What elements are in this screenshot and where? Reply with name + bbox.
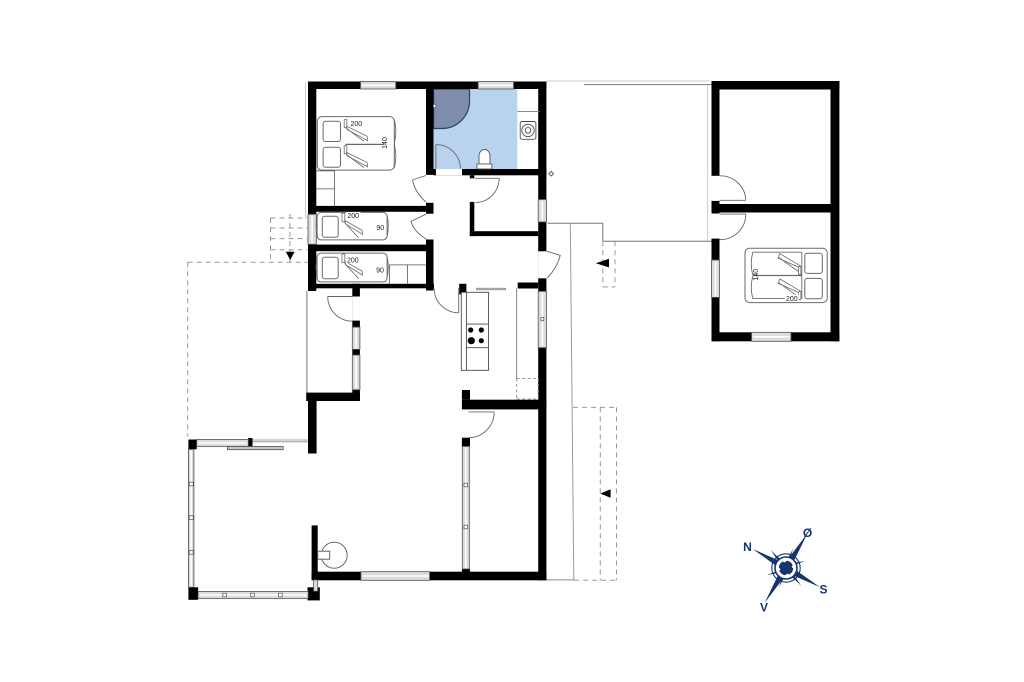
svg-text:200: 200	[350, 121, 362, 128]
svg-text:200: 200	[786, 296, 798, 303]
svg-text:90: 90	[376, 225, 384, 232]
svg-text:140: 140	[753, 269, 760, 281]
svg-text:200: 200	[347, 257, 359, 264]
svg-text:S: S	[819, 583, 827, 597]
svg-text:90: 90	[376, 268, 384, 275]
svg-text:V: V	[760, 601, 768, 615]
svg-text:N: N	[743, 540, 752, 554]
svg-text:200: 200	[347, 213, 359, 220]
svg-text:Ø: Ø	[803, 526, 812, 540]
svg-text:140: 140	[382, 137, 389, 149]
